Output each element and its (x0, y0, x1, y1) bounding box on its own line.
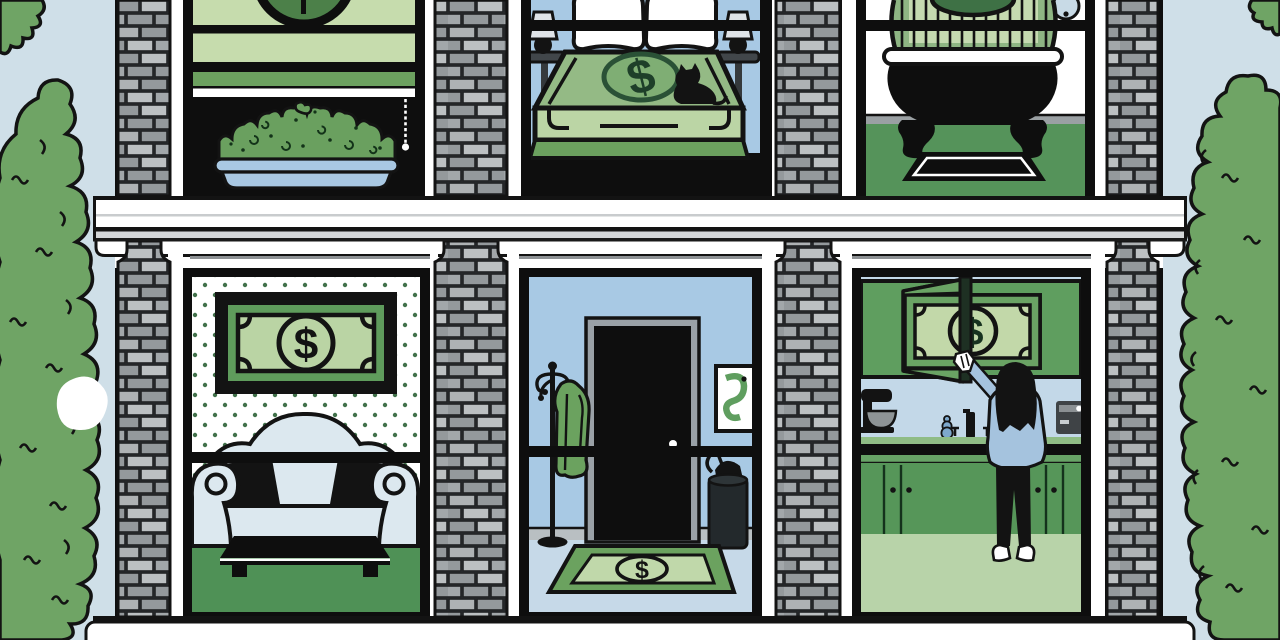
svg-text:$: $ (294, 320, 318, 369)
svg-text:$: $ (635, 556, 649, 584)
